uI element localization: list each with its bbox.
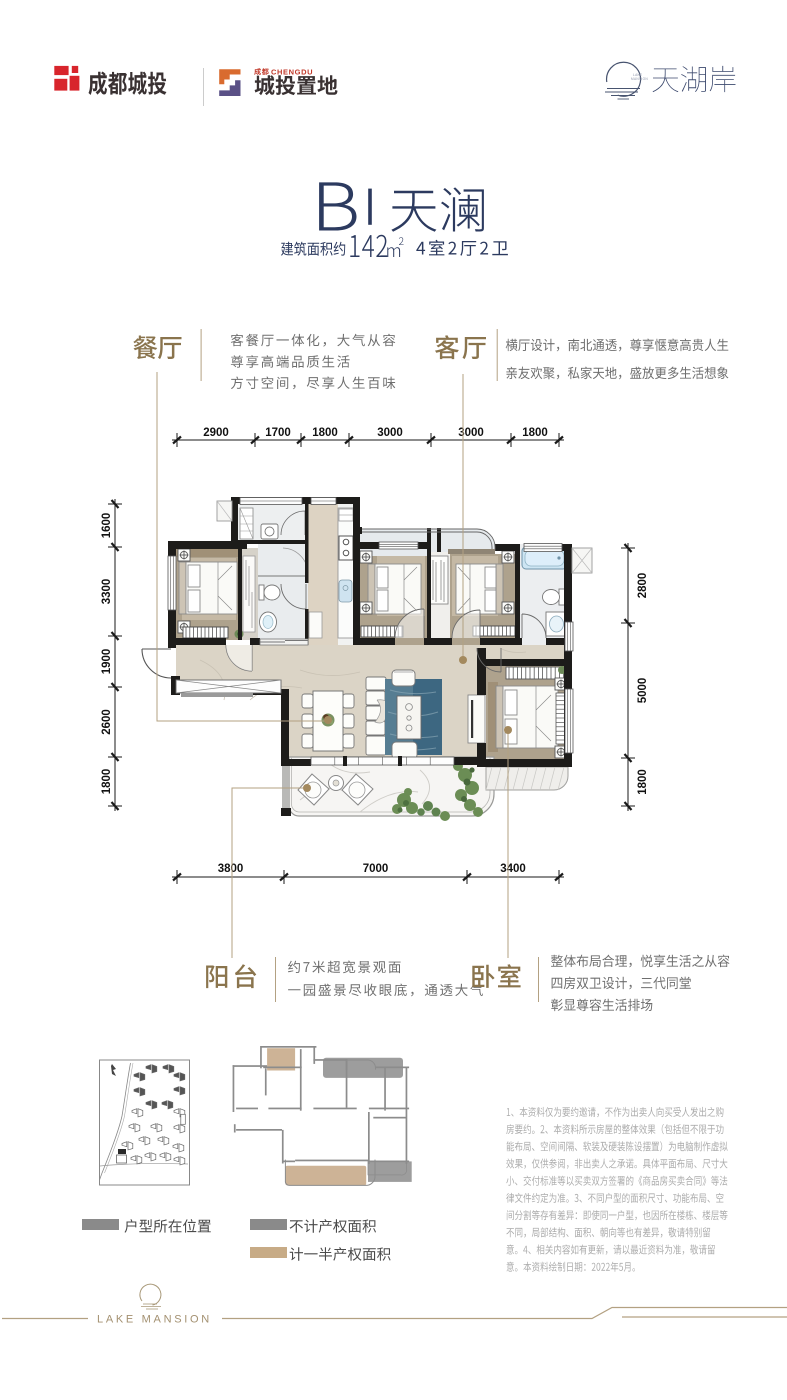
svg-text:7000: 7000 <box>363 863 389 875</box>
svg-text:1800: 1800 <box>312 427 338 439</box>
svg-text:MANSION: MANSION <box>631 77 648 81</box>
svg-text:3400: 3400 <box>500 863 526 875</box>
svg-text:3000: 3000 <box>458 427 484 439</box>
svg-text:1600: 1600 <box>101 513 113 539</box>
svg-text:1800: 1800 <box>101 769 113 795</box>
svg-text:1800: 1800 <box>637 769 649 795</box>
svg-text:3000: 3000 <box>377 427 403 439</box>
svg-text:5000: 5000 <box>637 678 649 704</box>
svg-text:CHENGDU: CHENGDU <box>271 67 313 76</box>
svg-text:1900: 1900 <box>101 649 113 675</box>
svg-text:1800: 1800 <box>522 427 548 439</box>
svg-text:2900: 2900 <box>203 427 229 439</box>
svg-text:1700: 1700 <box>265 427 291 439</box>
svg-text:2600: 2600 <box>101 709 113 735</box>
svg-text:3300: 3300 <box>101 579 113 605</box>
svg-text:LAKE MANSION: LAKE MANSION <box>97 1314 212 1326</box>
svg-text:3800: 3800 <box>218 863 244 875</box>
svg-text:2800: 2800 <box>637 573 649 599</box>
